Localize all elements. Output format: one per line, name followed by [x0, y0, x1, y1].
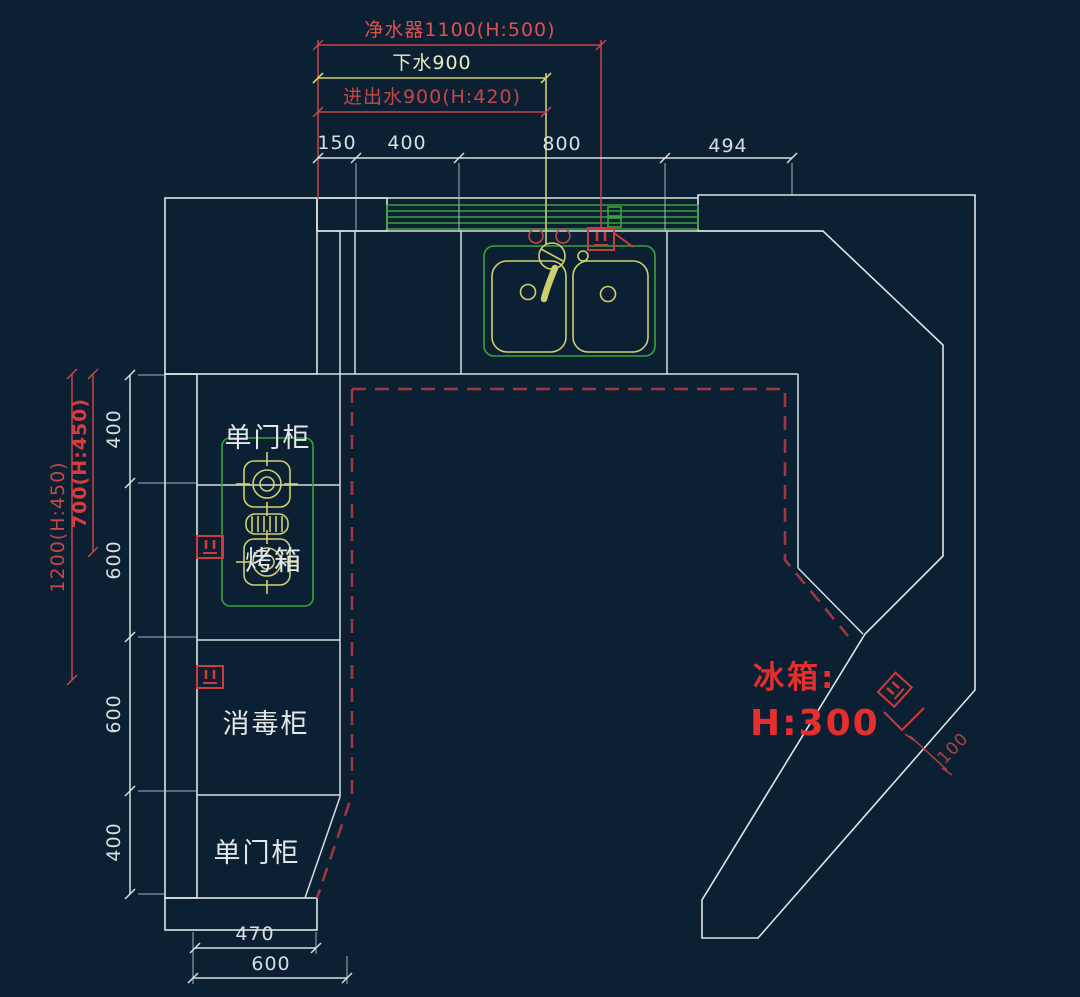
- burner-top: [244, 461, 290, 507]
- label-fridge-height: H:300: [750, 703, 880, 744]
- wall-top-strip: [317, 198, 387, 231]
- plan-canvas: 净水器1100(H:500) 下水900 进出水900(H:420) 150 4…: [0, 0, 1080, 997]
- wall-top-left-pier: [165, 198, 317, 374]
- burner-top-ring: [253, 470, 281, 498]
- diagonal-dimension: 100: [905, 729, 973, 775]
- wall-left: [165, 374, 197, 898]
- label-cabinet-bottom: 单门柜: [214, 838, 301, 869]
- overhang-dashed-line: [317, 389, 352, 898]
- cad-kitchen-plan: 净水器1100(H:500) 下水900 进出水900(H:420) 150 4…: [0, 0, 1080, 997]
- dim-600-bottom: 600: [251, 953, 290, 975]
- dim-1200: 1200(H:450): [47, 461, 69, 592]
- label-cabinet-top: 单门柜: [225, 423, 312, 454]
- sink-outline: [484, 246, 655, 356]
- wall-right-diagonal: [698, 195, 975, 938]
- faucet-handle: [541, 249, 563, 261]
- label-sterilizer: 消毒柜: [223, 709, 310, 740]
- overhang-dashed-line: [352, 389, 848, 636]
- drain-point-icon: [578, 251, 588, 261]
- dim-800: 800: [542, 133, 581, 155]
- socket-bracket: [884, 708, 924, 730]
- dim-inlet-outlet: 进出水900(H:420): [343, 86, 521, 108]
- dim-100: 100: [934, 729, 973, 768]
- dim-drain: 下水900: [392, 52, 471, 74]
- power-socket-icon: [197, 536, 223, 558]
- faucet-icon: [539, 243, 565, 269]
- dim-400: 400: [387, 132, 426, 154]
- counter-diagonal-edge: [798, 568, 863, 634]
- dim-150: 150: [317, 132, 356, 154]
- label-oven: 烤箱: [245, 546, 303, 577]
- bottom-dimensions: 470 600: [188, 923, 352, 984]
- window: [317, 198, 698, 229]
- label-fridge-name: 冰箱:: [753, 660, 836, 696]
- dim-600b: 600: [103, 694, 125, 733]
- faucet-spout: [544, 268, 555, 299]
- power-socket-icon: [878, 673, 912, 707]
- dim-400b: 400: [103, 822, 125, 861]
- sink-drain-right: [601, 287, 616, 302]
- wall-sockets: [197, 536, 924, 730]
- dim-494: 494: [708, 135, 747, 157]
- stove-oven: [222, 438, 313, 606]
- dim-600a: 600: [103, 540, 125, 579]
- power-socket-icon: [197, 666, 223, 688]
- dim-700: 700(H:450): [69, 398, 91, 528]
- socket-lead-line: [614, 233, 633, 247]
- sink: [484, 228, 655, 356]
- burner-top-ring: [260, 477, 274, 491]
- sink-drain-left: [521, 285, 536, 300]
- dim-400a: 400: [103, 409, 125, 448]
- sink-bowl-right: [573, 261, 648, 352]
- dim-470: 470: [235, 923, 274, 945]
- dim-purifier: 净水器1100(H:500): [364, 19, 555, 41]
- left-dimensions: 1200(H:450) 700(H:450) 400 600 600 400: [47, 369, 197, 899]
